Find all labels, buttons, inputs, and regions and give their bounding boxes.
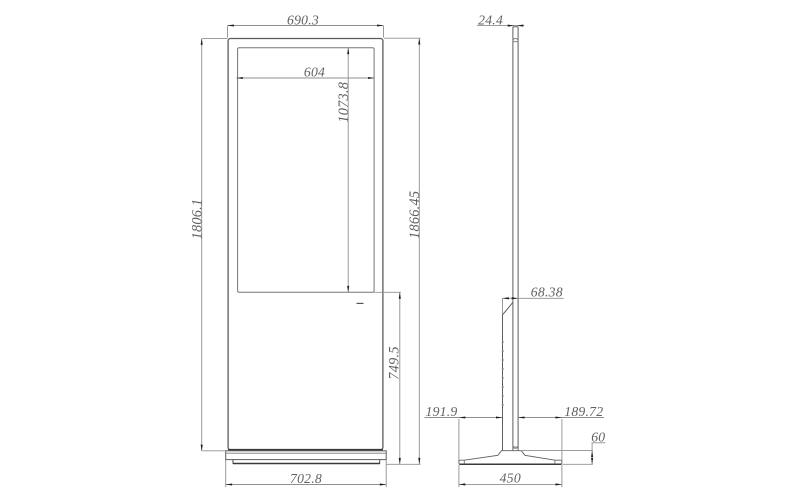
svg-text:1866.45: 1866.45: [407, 191, 423, 239]
svg-text:60: 60: [591, 429, 605, 444]
svg-text:690.3: 690.3: [287, 13, 319, 28]
svg-text:749.5: 749.5: [387, 346, 403, 379]
svg-text:189.72: 189.72: [564, 404, 603, 419]
svg-text:24.4: 24.4: [478, 13, 503, 28]
svg-text:450: 450: [500, 471, 521, 486]
svg-text:604: 604: [304, 64, 325, 79]
svg-text:702.8: 702.8: [290, 471, 322, 486]
svg-text:1806.1: 1806.1: [189, 199, 205, 240]
svg-text:68.38: 68.38: [531, 285, 563, 300]
svg-text:1073.8: 1073.8: [336, 82, 352, 123]
svg-text:191.9: 191.9: [425, 404, 457, 419]
